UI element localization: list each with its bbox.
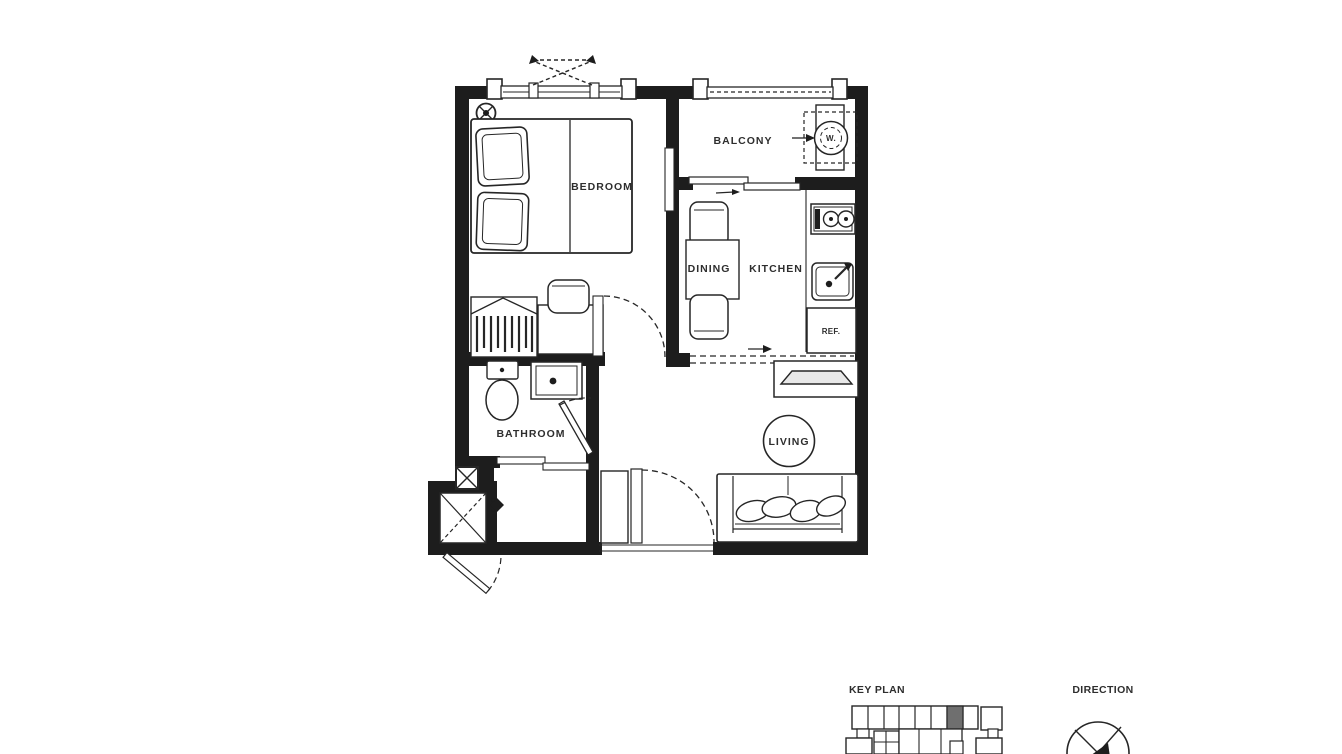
refrigerator-icon: REF.: [807, 308, 856, 353]
bath-sink-icon: [531, 362, 582, 399]
living-label: LIVING: [768, 436, 809, 448]
bedroom-label: BEDROOM: [571, 181, 633, 193]
balcony-label: BALCONY: [714, 135, 773, 147]
stool-icon: [548, 280, 589, 313]
shaft-x-icon: [440, 493, 486, 543]
kitchen-label: KITCHEN: [749, 263, 803, 275]
entry-cabinet-icon: [601, 471, 628, 543]
highlighted-unit: [947, 706, 963, 729]
sofa-icon: [717, 474, 858, 542]
bedroom-door-icon: [593, 296, 665, 357]
stove-icon: [811, 204, 855, 234]
floorplan-page: BEDROOM: [0, 0, 1342, 754]
direction-label: DIRECTION: [1072, 684, 1133, 696]
sliding-door-icon: [665, 148, 674, 211]
pillow-icon: [476, 192, 529, 251]
unit-plan: BEDROOM: [428, 55, 868, 593]
pillow-icon: [476, 127, 530, 187]
washer-icon: W.: [792, 105, 857, 170]
balcony-railing-icon: [693, 79, 847, 99]
living-label-circle: LIVING: [764, 416, 815, 467]
washer-label: W.: [826, 134, 836, 143]
refrigerator-label: REF.: [822, 327, 841, 336]
wardrobe-icon: [471, 297, 537, 357]
key-plan-label: KEY PLAN: [849, 684, 905, 696]
dining-label: DINING: [688, 263, 731, 275]
direction: DIRECTION: [1067, 684, 1134, 754]
compass-icon: [1067, 722, 1129, 754]
window-swing-icon: [529, 55, 596, 85]
kitchen-sink-icon: [812, 263, 853, 300]
wall-duct-x-icon: [456, 467, 478, 489]
sliding-door-icon: [689, 177, 800, 195]
door-closer-icon: [490, 498, 504, 512]
bathroom-label: BATHROOM: [496, 428, 565, 440]
floor-plan-canvas: BEDROOM: [0, 0, 1342, 754]
entry-door-icon: [443, 553, 501, 594]
sliding-door-icon: [497, 457, 589, 470]
key-plan-map: [846, 706, 1002, 754]
bedroom-window-icon: [487, 79, 636, 99]
dining-chair-icon: [690, 295, 728, 339]
tv-console-icon: [774, 361, 858, 397]
toilet-icon: [486, 361, 518, 420]
key-plan: KEY PLAN: [846, 684, 1002, 754]
